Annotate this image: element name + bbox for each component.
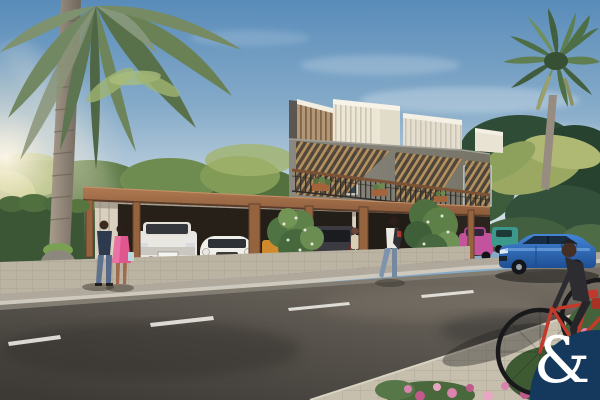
brand-logo-circle: & (530, 330, 600, 400)
brand-logo-ampersand: & (534, 329, 591, 393)
scene-canvas (0, 0, 600, 400)
property-render: & (0, 0, 600, 400)
